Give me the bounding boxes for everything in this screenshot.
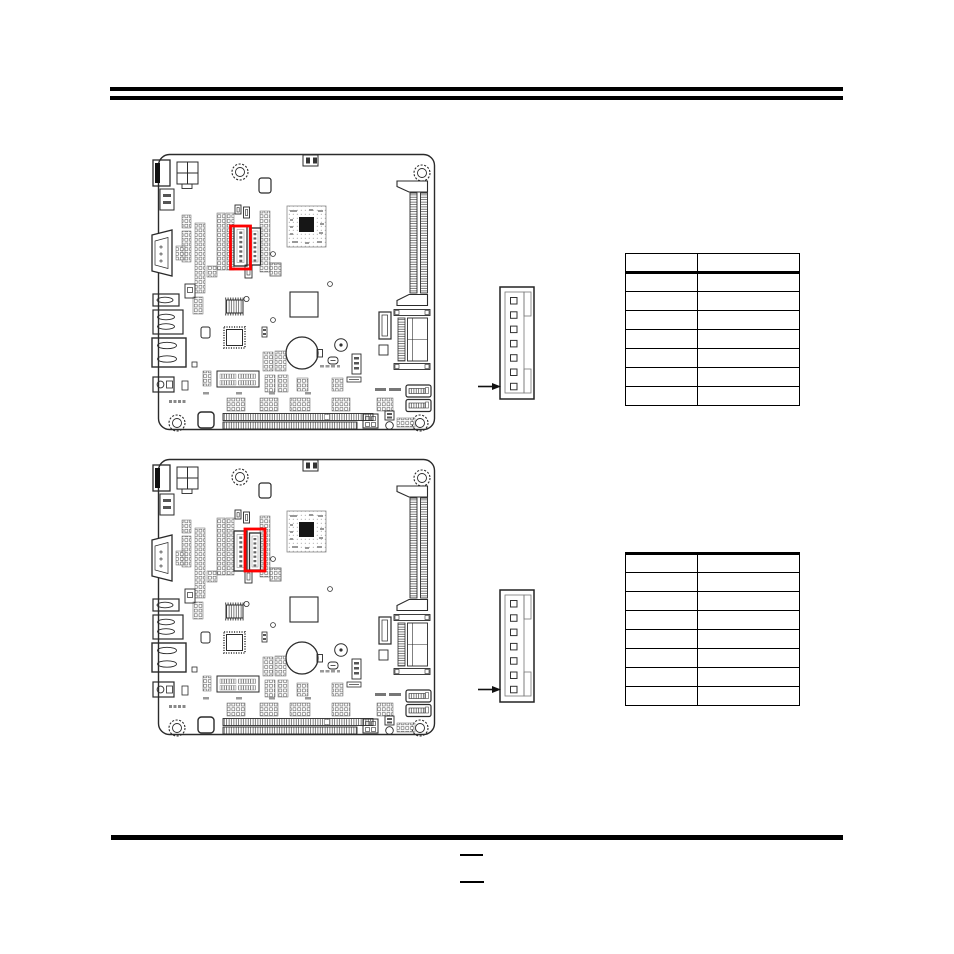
manual-page <box>0 0 954 954</box>
table-row <box>626 387 800 406</box>
table-row <box>626 311 800 330</box>
pin-square <box>511 658 518 665</box>
table-cell <box>626 311 698 330</box>
table-header-cell <box>626 254 698 273</box>
table-row <box>626 687 800 706</box>
table-cell <box>698 649 800 668</box>
pin-header-figure-top <box>466 285 542 407</box>
table-header-cell <box>698 254 800 273</box>
pin-square <box>511 355 518 362</box>
table-row <box>626 349 800 368</box>
pin-squares <box>511 298 518 390</box>
pin-header-figure-bottom <box>466 588 542 710</box>
pin-square <box>511 383 518 390</box>
table-cell <box>698 368 800 387</box>
table-cell <box>626 330 698 349</box>
table-row <box>626 368 800 387</box>
table-row <box>626 611 800 630</box>
table-row <box>626 273 800 292</box>
pin-square <box>511 312 518 319</box>
table-cell <box>626 649 698 668</box>
table-cell <box>626 611 698 630</box>
table-cell <box>626 573 698 592</box>
motherboard-diagram-bottom <box>151 458 438 738</box>
table-cell <box>698 292 800 311</box>
table-cell <box>626 349 698 368</box>
pin1-arrow-icon <box>478 686 501 693</box>
table-cell <box>698 349 800 368</box>
pin-squares <box>511 601 518 693</box>
pin-assignment-table-top <box>625 253 800 406</box>
pin-square <box>511 615 518 622</box>
header-rule-1 <box>110 87 843 91</box>
pin-assignment-table-bottom <box>625 552 800 706</box>
table-cell <box>698 573 800 592</box>
table-row <box>626 573 800 592</box>
pin-square <box>511 369 518 376</box>
table-cell <box>698 668 800 687</box>
table-cell <box>698 311 800 330</box>
table-row <box>626 330 800 349</box>
table-cell <box>698 387 800 406</box>
table-cell <box>626 630 698 649</box>
table-header-row <box>626 254 800 273</box>
table-cell <box>698 611 800 630</box>
table-cell <box>626 292 698 311</box>
pin-square <box>511 629 518 636</box>
table-cell <box>698 273 800 292</box>
page-number-underline-1 <box>460 854 483 856</box>
table-cell <box>626 273 698 292</box>
table-cell <box>626 387 698 406</box>
pin1-arrow-icon <box>478 383 501 390</box>
table-cell <box>626 668 698 687</box>
pin-square <box>511 686 518 693</box>
table-cell <box>626 687 698 706</box>
pin-square <box>511 298 518 305</box>
table-header-cell <box>698 554 800 573</box>
table-row <box>626 649 800 668</box>
table-cell <box>698 630 800 649</box>
pin-square <box>511 601 518 608</box>
pin-square <box>511 340 518 347</box>
table-cell <box>626 368 698 387</box>
table-row <box>626 592 800 611</box>
table-header-cell <box>626 554 698 573</box>
table-row <box>626 668 800 687</box>
table-cell <box>698 687 800 706</box>
table-cell <box>698 592 800 611</box>
header-rule-2 <box>110 96 843 100</box>
table-header-row <box>626 554 800 573</box>
pin-square <box>511 643 518 650</box>
page-number-underline-2 <box>460 881 484 883</box>
pin-square <box>511 326 518 333</box>
table-cell <box>698 330 800 349</box>
pin-square <box>511 672 518 679</box>
table-row <box>626 630 800 649</box>
table-cell <box>626 592 698 611</box>
footer-rule <box>111 835 843 840</box>
motherboard-diagram-top <box>151 153 438 433</box>
table-row <box>626 292 800 311</box>
